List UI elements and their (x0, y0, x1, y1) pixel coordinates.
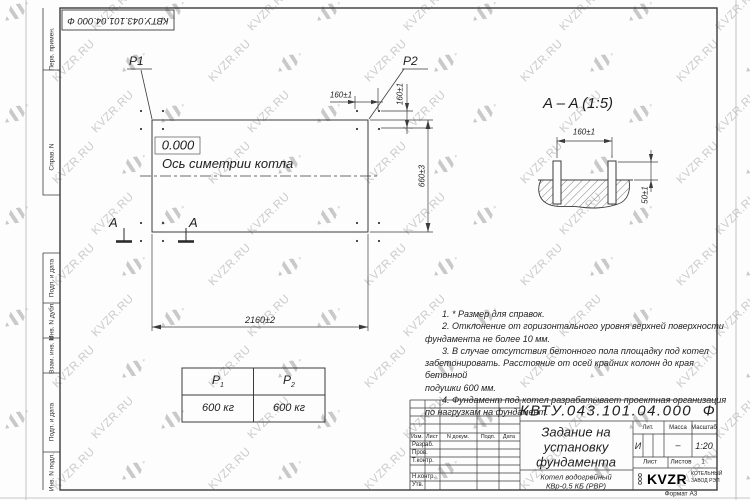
load-table-value-p2: 600 кг (273, 402, 305, 414)
section-aa-title: A – A (1:5) (543, 95, 613, 112)
col-data: Дата (503, 434, 515, 440)
anchor-bolt-right (608, 161, 616, 204)
point-p2-label: P2 (403, 54, 418, 68)
row-nkontr: Н.контр. (412, 474, 435, 480)
mass-label: Масса (669, 425, 687, 431)
col-list: Лист (426, 434, 438, 440)
section-cut-marks (116, 228, 194, 242)
col-izm: Изм. (411, 434, 423, 440)
product-line2: КВр-0,5 КБ (РВР) (546, 482, 606, 491)
note-line: 2. Отклонение от горизонтального уровня … (425, 320, 727, 332)
note-line: фундамента не более 10 мм. (425, 333, 727, 345)
sheets-value: 1 (701, 459, 705, 466)
note-line: подушки 600 мм. (425, 382, 727, 394)
margin-label-inv-podl: Инв. N подл. (49, 453, 56, 491)
load-table-header-p2: P2 (283, 373, 295, 389)
p1-leader (141, 70, 152, 119)
sheets-label: Листов (670, 459, 691, 466)
mass-value: – (675, 440, 680, 450)
section-letter-left: A (109, 215, 118, 230)
zero-level-label: 0.000 (162, 138, 195, 153)
section-dim-160: 160±1 (573, 128, 595, 137)
dim-160-horizontal: 160±1 (330, 91, 352, 100)
sheet-edges (0, 0, 750, 500)
row-prov: Пров. (412, 450, 428, 456)
doc-number: КВТУ.043.101.04.000 Ф (520, 403, 716, 420)
margin-label-sprav-n: Справ. N (49, 143, 56, 170)
drawing-linework (0, 0, 750, 500)
dim-660: 660±3 (418, 165, 427, 187)
logo-sub2: ЗАВОД РЭП (691, 478, 720, 484)
logo-kvzr: KVZR (647, 471, 687, 487)
row-tkontr: Т.контр. (412, 458, 434, 464)
load-table-value-p1: 600 кг (202, 402, 234, 414)
margin-label-podp-data-2: Подп. и дата (49, 403, 56, 441)
boiler-axis-label: Ось симетрии котла (162, 156, 293, 171)
note-line: 1. * Размер для справок. (425, 308, 727, 320)
note-line: забетонировать. Расстояние от осей крайн… (425, 357, 727, 382)
note-line: 3. В случае отсутствия бетонного пола пл… (425, 345, 727, 357)
col-podp: Подп. (481, 434, 496, 440)
sheet-label: Лист (643, 459, 657, 466)
product-line1: Котел водогрейный (540, 473, 611, 482)
lit-value: И (635, 441, 641, 451)
scale-label: Масштаб (691, 425, 717, 431)
load-table-header-p1: P1 (212, 373, 224, 389)
margin-label-vzam-inv: Взам. инв. N (49, 336, 56, 374)
margin-label-inv-dubl: Инв. N дубл. (49, 302, 56, 340)
format-label: Формат А3 (665, 491, 698, 498)
drawing-sheet: KVZR.RUKVZR.RUKVZR.RUKVZR.RUKVZR.RUKVZR.… (0, 0, 750, 500)
scale-value: 1:20 (695, 441, 713, 451)
doc-title-line3: фундамента (536, 455, 616, 470)
doc-title-line1: Задание на (541, 425, 610, 440)
lit-label: Лит. (642, 425, 653, 431)
margin-label-perv-primen: Перв. примен. (49, 27, 56, 70)
row-utv: Утв. (412, 482, 423, 488)
dim-2160: 2160±2 (245, 315, 275, 325)
dim-160-vertical: 160±1 (396, 83, 405, 105)
plan-dimensions (152, 84, 433, 331)
logo-ooo: ООО (638, 473, 644, 485)
anchor-bolt-left (553, 161, 561, 204)
margin-label-podp-data-1: Подп. и дата (49, 259, 56, 297)
doc-number-stamp: КВТУ.043.101.04.000 Ф (62, 10, 174, 30)
doc-title-line2: установку (544, 440, 609, 455)
logo-sub1: КОТЕЛЬНЫЙ (691, 471, 722, 477)
col-n-dokum: N докум. (447, 434, 469, 440)
point-p1-label: P1 (129, 54, 144, 68)
section-dim-50: 50±1 (641, 186, 650, 204)
section-letter-right: A (189, 215, 198, 230)
row-razrab: Разраб. (412, 442, 434, 448)
